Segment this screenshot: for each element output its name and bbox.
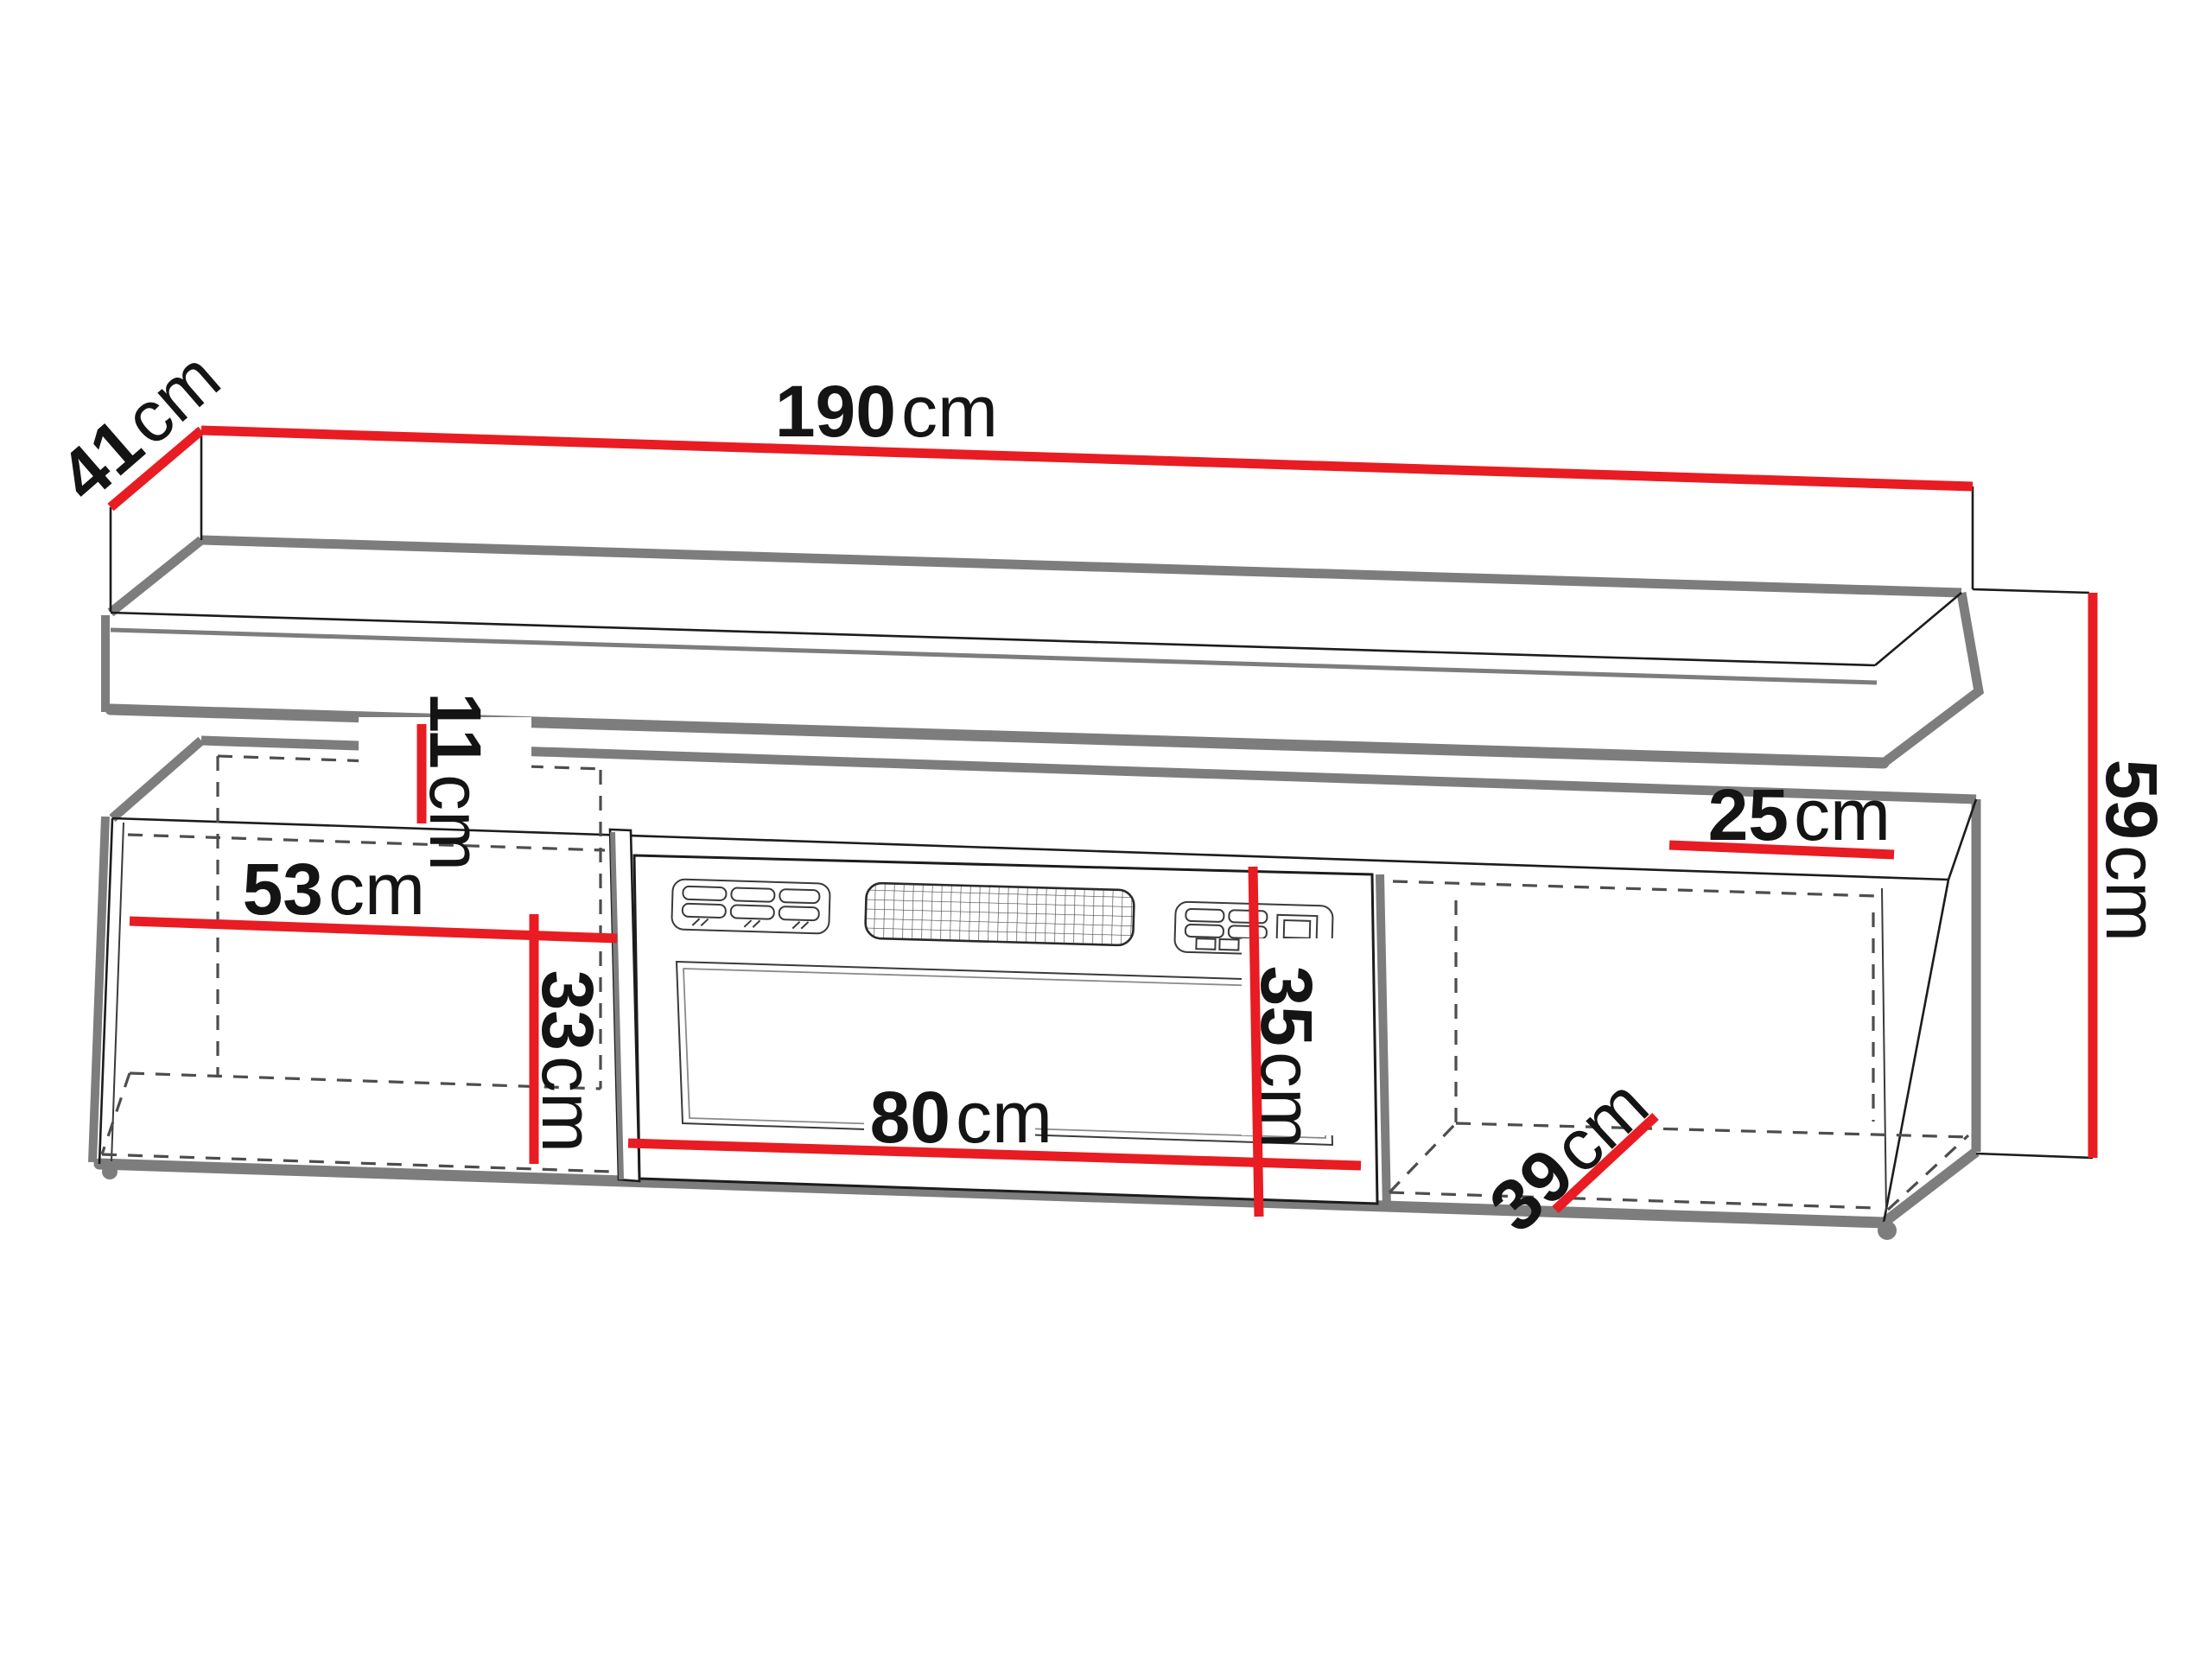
leader-height-bottom <box>1976 1154 2093 1158</box>
label-total-height: 59 cm <box>2091 760 2172 942</box>
label-fireplace-width-unit: cm <box>956 1077 1052 1158</box>
label-shelf-width-value: 190 <box>775 371 896 452</box>
label-fireplace-width-value: 80 <box>870 1077 950 1158</box>
label-left-width-unit: cm <box>328 849 425 930</box>
heater-mesh-grid <box>865 883 1135 946</box>
label-shelf-gap: 11 cm <box>415 692 496 871</box>
label-shelf-gap-unit: cm <box>415 774 496 871</box>
label-left-height-value: 33 <box>527 970 608 1051</box>
label-left-height: 33 cm <box>527 970 608 1153</box>
label-total-height-unit: cm <box>2091 845 2172 942</box>
label-shelf-gap-value: 11 <box>415 692 496 769</box>
label-fireplace-height: 35 cm <box>1246 966 1327 1148</box>
label-left-height-unit: cm <box>527 1056 608 1153</box>
label-fireplace-height-value: 35 <box>1246 966 1327 1046</box>
dimension-diagram: 190 cm 41 cm 59 cm 25 cm 11 cm 53 cm 33 … <box>0 0 2212 1659</box>
fireplace-heater-mesh <box>865 883 1135 946</box>
label-top-depth-unit: cm <box>1794 774 1891 855</box>
dimension-line-shelf-width-190 <box>201 430 1973 486</box>
label-top-depth-value: 25 <box>1708 774 1789 855</box>
label-left-width-value: 53 <box>243 849 323 930</box>
cabinet-right-foot <box>1878 1221 1897 1240</box>
cabinet-left-foot <box>102 1164 118 1179</box>
label-shelf-width-unit: cm <box>901 371 998 452</box>
leader-height-top <box>1973 589 2089 593</box>
label-total-height-value: 59 <box>2091 760 2172 840</box>
label-fireplace-height-unit: cm <box>1246 1052 1327 1148</box>
